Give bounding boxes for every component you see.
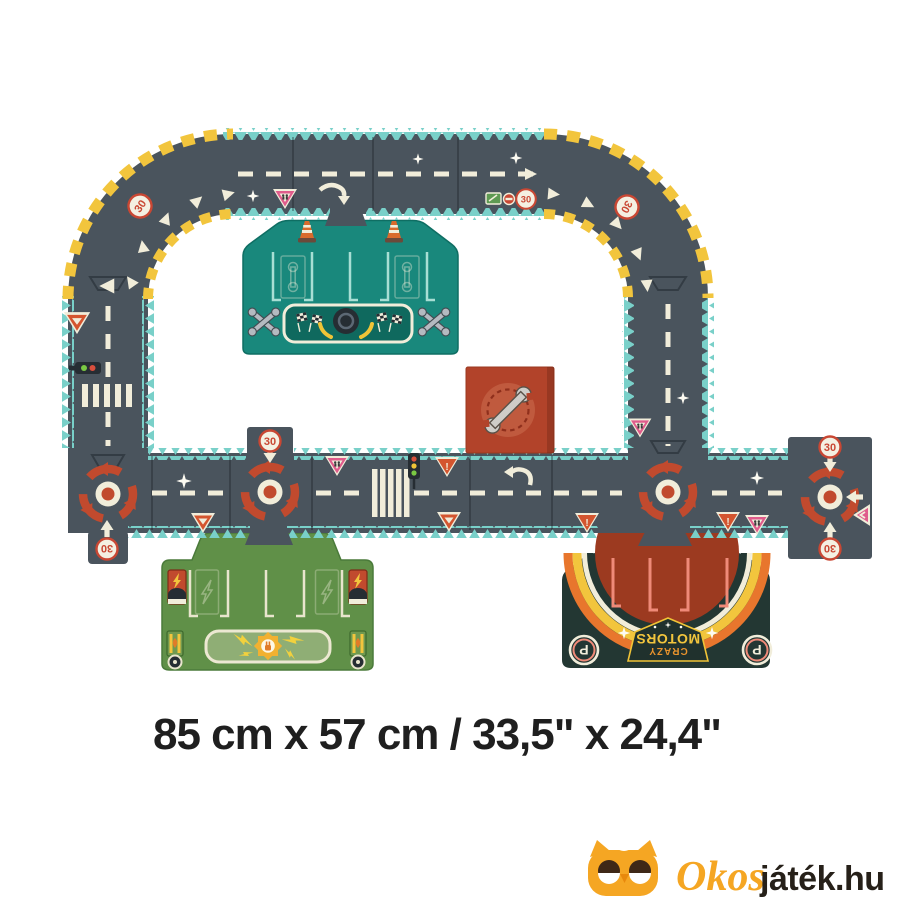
- tab-to-pit-mat: [325, 212, 367, 226]
- speed-limit-sign: 30: [820, 437, 841, 458]
- road-puzzle-illustration: ! ! ! 30 30 30 30 30 30 30: [0, 0, 900, 900]
- product-photo: ! ! ! 30 30 30 30 30 30 30: [0, 0, 900, 900]
- svg-text:30: 30: [824, 442, 836, 454]
- svg-text:!: !: [445, 462, 448, 473]
- svg-text:P: P: [579, 642, 588, 658]
- charging-station-icon: [349, 570, 367, 604]
- parking-badge: P: [743, 636, 771, 664]
- svg-text:!: !: [726, 517, 729, 528]
- tire-icon: [333, 308, 359, 334]
- watermark-brand-suffix: játék.hu: [759, 860, 884, 898]
- speed-limit-sign: 30: [516, 189, 536, 209]
- charging-station-icon: [168, 570, 186, 604]
- fuel-pump-icon: [350, 631, 366, 669]
- watermark-logo: Okos játék.hu: [588, 829, 884, 900]
- watermark-brand-prefix: Okos: [676, 854, 765, 900]
- svg-text:30: 30: [521, 194, 531, 204]
- tab-to-parking-mat: [638, 530, 692, 546]
- parking-badge: P: [570, 636, 598, 664]
- speed-limit-sign: 30: [820, 539, 841, 560]
- sign-cluster: [486, 193, 515, 205]
- charging-banner: [206, 631, 330, 662]
- tab-to-charging-mat: [245, 530, 293, 545]
- owl-logo-icon: [588, 829, 658, 896]
- repair-tile: [466, 367, 554, 453]
- plug-gear-icon: [254, 632, 282, 660]
- svg-text:30: 30: [824, 542, 836, 554]
- road-track: ! ! ! 30 30 30 30 30 30 30: [62, 128, 872, 564]
- svg-text:30: 30: [264, 436, 276, 448]
- svg-text:30: 30: [101, 542, 113, 554]
- svg-text:!: !: [585, 518, 588, 529]
- svg-text:P: P: [752, 642, 761, 658]
- speed-limit-sign: 30: [97, 539, 118, 560]
- pit-banner: [284, 305, 412, 342]
- svg-text:MOTORS: MOTORS: [636, 631, 700, 647]
- fuel-pump-icon: [167, 631, 183, 669]
- speed-limit-sign: 30: [260, 431, 281, 452]
- dimensions-text: 85 cm x 57 cm / 33,5" x 24,4": [153, 710, 721, 759]
